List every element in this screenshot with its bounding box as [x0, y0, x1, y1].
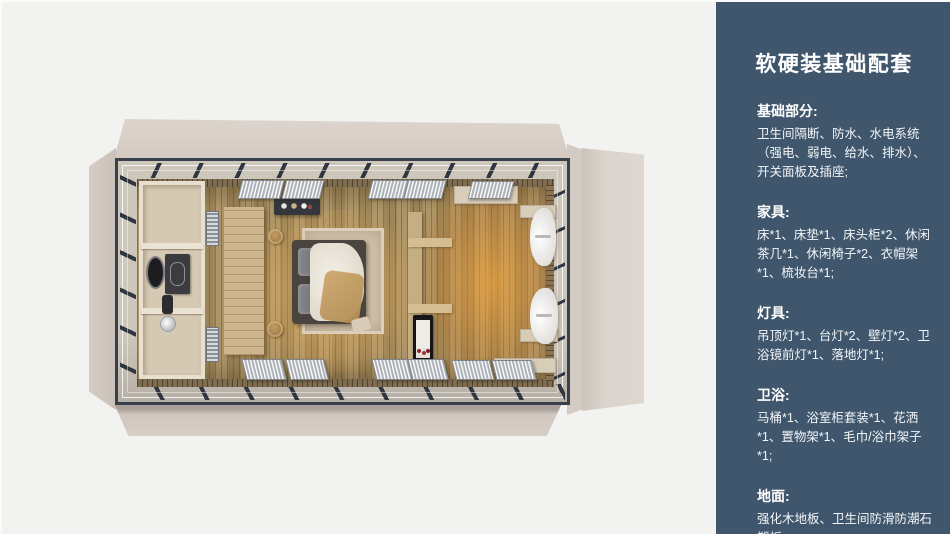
- toilet: [162, 295, 173, 314]
- section-basics: 基础部分: 卫生间隔断、防水、水电系统（强电、弱电、给水、排水）、开关面板及插座…: [757, 102, 934, 182]
- section-floor: 地面: 强化木地板、卫生间防滑防潮石塑板;: [757, 487, 934, 534]
- louver-window: [452, 360, 495, 380]
- section-furniture-heading: 家具:: [757, 203, 934, 222]
- floorplan-render: [2, 2, 716, 534]
- wall-bottom: [137, 379, 554, 387]
- curtain-upper: [530, 208, 556, 266]
- pouf-upper: [268, 229, 283, 244]
- towel-radiator-lower: [206, 327, 219, 362]
- shell-panel-top: [114, 119, 570, 159]
- decor-wall-shelf: [274, 198, 320, 215]
- shell-panel-bottom: [106, 404, 570, 436]
- section-furniture-body: 床*1、床垫*1、床头柜*2、休闲茶几*1、休闲椅子*2、衣帽架*1、梳妆台*1…: [757, 226, 934, 283]
- slide: 软硬装基础配套 基础部分: 卫生间隔断、防水、水电系统（强电、弱电、给水、排水）…: [0, 0, 950, 534]
- shower-head: [160, 316, 176, 332]
- frame-brace-left: [120, 163, 136, 400]
- louver-window: [241, 359, 286, 380]
- section-floor-body: 强化木地板、卫生间防滑防潮石塑板;: [757, 510, 934, 534]
- section-lighting: 灯具: 吊顶灯*1、台灯*2、壁灯*2、卫浴镜前灯*1、落地灯*1;: [757, 304, 934, 365]
- pouf-lower: [267, 321, 283, 337]
- section-bath-body: 马桶*1、浴室柜套装*1、花洒*1、置物架*1、毛巾/浴巾架子*1;: [757, 409, 934, 466]
- louver-window: [404, 180, 447, 199]
- louver-window: [407, 359, 448, 380]
- frame-brace-top: [120, 163, 565, 178]
- throw-blanket: [319, 269, 366, 324]
- section-furniture: 家具: 床*1、床垫*1、床头柜*2、休闲茶几*1、休闲椅子*2、衣帽架*1、梳…: [757, 203, 934, 283]
- shelf-arm-lower: [408, 304, 452, 313]
- sidebar-sections: 基础部分: 卫生间隔断、防水、水电系统（强电、弱电、给水、排水）、开关面板及插座…: [757, 102, 934, 534]
- louver-window: [371, 359, 412, 380]
- section-basics-body: 卫生间隔断、防水、水电系统（强电、弱电、给水、排水）、开关面板及插座;: [757, 125, 934, 182]
- bathroom-vanity: [165, 254, 190, 294]
- shelf-arm-upper: [408, 238, 452, 247]
- curtain-lower: [530, 288, 558, 344]
- display-cabinet: [413, 315, 433, 363]
- louver-window: [238, 180, 285, 199]
- louver-window: [285, 359, 328, 380]
- shell-panel-right: [582, 148, 644, 411]
- vanity-mirror: [146, 256, 165, 289]
- louver-window: [492, 360, 537, 380]
- shell-panel-left: [89, 148, 116, 410]
- headboard-divider-wall: [224, 207, 264, 355]
- section-lighting-heading: 灯具:: [757, 304, 934, 323]
- sidebar-title: 软硬装基础配套: [726, 48, 942, 78]
- section-floor-heading: 地面:: [757, 487, 934, 506]
- spec-sidebar: 软硬装基础配套 基础部分: 卫生间隔断、防水、水电系统（强电、弱电、给水、排水）…: [716, 0, 950, 534]
- bathroom-partition-upper: [141, 243, 203, 249]
- towel-radiator-upper: [206, 211, 219, 246]
- louver-window: [368, 180, 409, 199]
- section-lighting-body: 吊顶灯*1、台灯*2、壁灯*2、卫浴镜前灯*1、落地灯*1;: [757, 327, 934, 365]
- louver-window: [282, 180, 325, 199]
- section-bath-heading: 卫浴:: [757, 386, 934, 405]
- section-bath: 卫浴: 马桶*1、浴室柜套装*1、花洒*1、置物架*1、毛巾/浴巾架子*1;: [757, 386, 934, 466]
- section-basics-heading: 基础部分:: [757, 102, 934, 121]
- louver-window: [468, 181, 514, 199]
